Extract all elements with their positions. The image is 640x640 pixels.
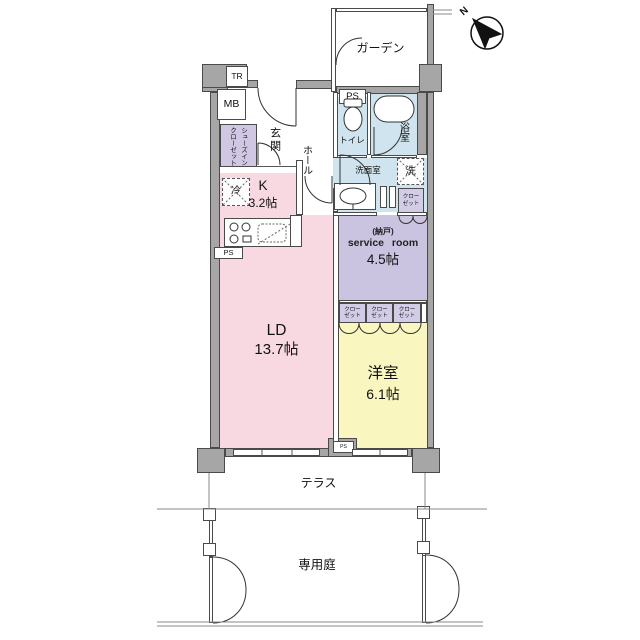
living-dining-size: 13.7帖: [220, 341, 333, 358]
washroom-slide-a: [380, 186, 387, 208]
wall-pillar-garden: [419, 64, 442, 92]
wall-entry-stub: [247, 80, 258, 88]
washroom-slide-b: [389, 186, 396, 208]
pipe-space-kitchen-box: PS: [214, 247, 243, 259]
closet-3: クローゼット: [393, 303, 421, 323]
shoes-closet-line2: クローゼット: [228, 127, 235, 166]
garden-top-extension: [433, 10, 452, 14]
window-ld: [233, 449, 320, 456]
garden-label: ガーデン: [336, 42, 425, 56]
meter-box: MB: [217, 89, 246, 120]
shoes-closet-line1: シューズイン: [239, 127, 246, 166]
floorplan: TR MB PS PS PS 冷 洗 クローゼット クローゼット クローゼット …: [0, 0, 640, 640]
wall-closet-stub: [421, 303, 427, 323]
toilet-label: トイレ: [337, 136, 367, 146]
wall-right-bath: [417, 92, 427, 155]
private-garden-bottom: [157, 622, 483, 626]
fence-post-l2: [203, 543, 216, 556]
wall-toilet-bath: [367, 92, 371, 155]
service-room-sublabel: (納戸): [339, 227, 427, 236]
closet-label: クローゼット: [371, 307, 388, 320]
washroom-label: 洗面室: [342, 166, 394, 176]
washbasin-counter: [334, 183, 376, 210]
genkan-label: 玄関: [268, 127, 281, 153]
bath-label: 浴室: [397, 122, 409, 142]
wall-hall-toilet: [333, 92, 338, 158]
wall-left: [210, 92, 220, 448]
terrace-label: テラス: [225, 477, 412, 491]
compass-needle: [473, 19, 501, 48]
fence-post-l1: [203, 508, 216, 521]
living-dining-label: LD: [220, 322, 333, 340]
washer-box: 洗: [397, 158, 424, 185]
private-garden-label: 専用庭: [209, 558, 425, 572]
kitchen-counter-end: [290, 215, 302, 247]
toilet-floor: [337, 97, 367, 155]
western-room-label: 洋室: [339, 365, 427, 383]
wall-pillar-bottomright: [412, 448, 440, 473]
western-room-size: 6.1帖: [339, 386, 427, 402]
closet-2: クローゼット: [366, 303, 393, 323]
compass-north-label: N: [458, 5, 471, 18]
wall-toilet-bottom: [337, 155, 367, 158]
bath-floor: [371, 94, 417, 155]
compass-circle: [471, 17, 503, 49]
entry-door-arc: [258, 88, 296, 126]
wall-washroom-service-a: [333, 212, 377, 216]
hall-label: ホール: [300, 145, 312, 175]
closet-label: クローゼット: [399, 307, 416, 320]
closet-washroom: クローゼット: [398, 188, 424, 213]
wall-ld-divider: [333, 215, 339, 448]
closet-label: クローゼット: [403, 194, 420, 207]
wall-genkan-top: [296, 80, 336, 89]
wall-right: [427, 92, 434, 448]
pipe-space-bottom-box: PS: [333, 441, 354, 453]
closet-1: クローゼット: [339, 303, 366, 323]
fence-post-r1: [417, 506, 430, 519]
service-room-size: 4.5帖: [339, 252, 427, 268]
trunk-room-box: TR: [226, 66, 248, 87]
pipe-space-top-box: PS: [339, 89, 366, 104]
kitchen-counter: [224, 218, 292, 247]
window-western: [352, 449, 408, 456]
genkan-step-line: [257, 166, 296, 167]
fence-post-r2: [417, 541, 430, 554]
kitchen-label: K: [222, 178, 304, 194]
service-room-label: service room: [339, 237, 427, 249]
hall-ld-door-arc: [305, 176, 332, 203]
kitchen-size: 3.2帖: [222, 197, 304, 211]
compass: [471, 17, 503, 49]
wall-pillar-bottomleft: [197, 448, 225, 473]
wall-garden-top: [336, 8, 427, 12]
gate-right-arcs: [426, 555, 459, 623]
closet-label: クローゼット: [344, 307, 361, 320]
